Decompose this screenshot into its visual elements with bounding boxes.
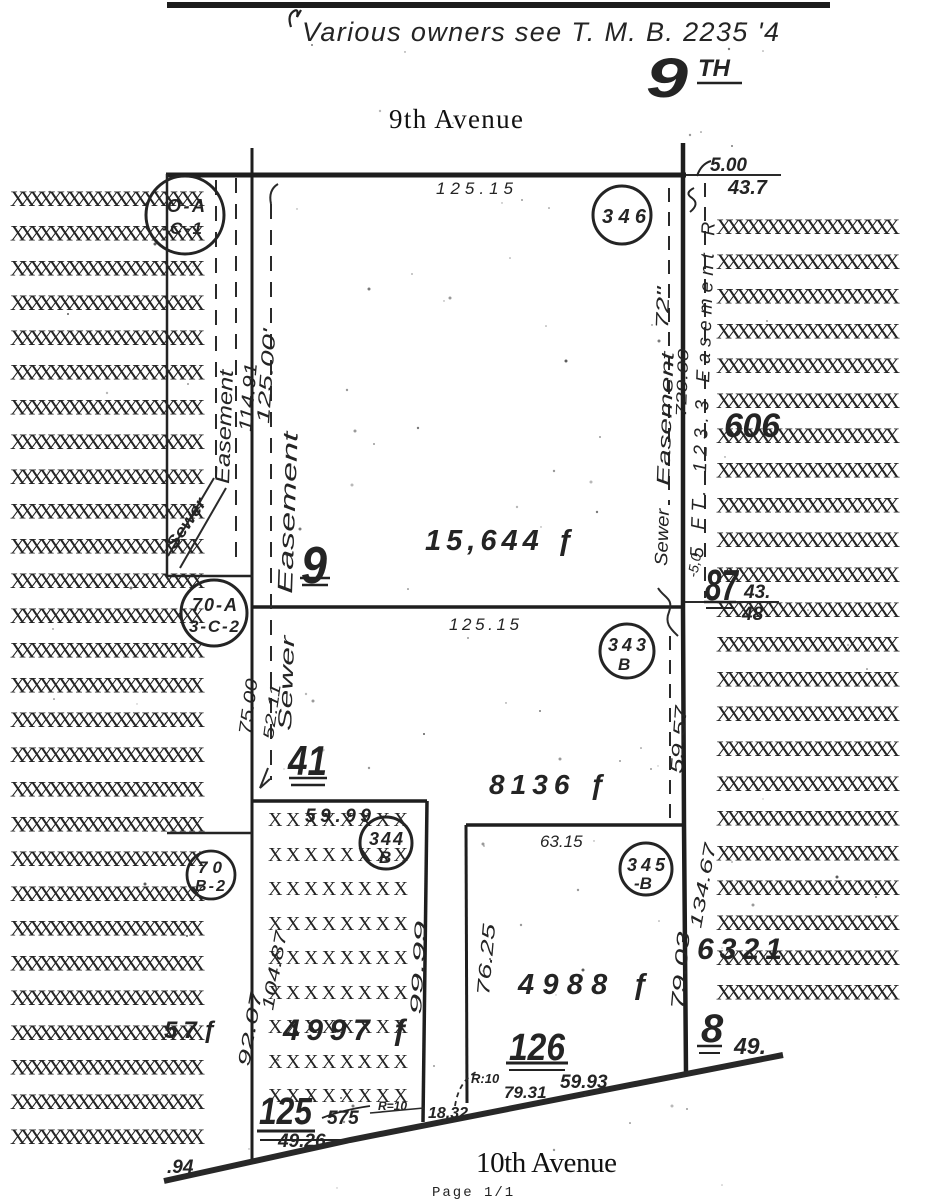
svg-text:XXXXXXXXXXXXXXXXXX: XXXXXXXXXXXXXXXXXX (716, 666, 900, 691)
svg-text:79.31: 79.31 (504, 1083, 547, 1102)
svg-text:Sewer: Sewer (651, 507, 673, 566)
svg-text:XXXXXXXXXXXXXXXXXX: XXXXXXXXXXXXXXXXXX (716, 806, 900, 831)
svg-text:X X X X X X X X: X X X X X X X X (268, 947, 409, 969)
svg-text:49.: 49. (733, 1033, 766, 1059)
svg-text:XXXXXXXXXXXXXXXXXXXX: XXXXXXXXXXXXXXXXXXXX (10, 742, 205, 767)
svg-text:XXXXXXXXXXXXXXXXXX: XXXXXXXXXXXXXXXXXX (716, 632, 900, 657)
svg-text:XXXXXXXXXXXXXXXXXXXX: XXXXXXXXXXXXXXXXXXXX (10, 256, 205, 281)
svg-text:X X X X X X X X: X X X X X X X X (268, 1051, 409, 1073)
svg-text:59.99: 59.99 (305, 806, 371, 827)
svg-text:XXXXXXXXXXXXXXXXXXXX: XXXXXXXXXXXXXXXXXXXX (10, 777, 205, 802)
svg-text:Various owners see T. M. B. 22: Various owners see T. M. B. 2235 '4 (302, 17, 779, 47)
svg-text:Page 1/1: Page 1/1 (432, 1185, 515, 1200)
svg-text:3-C-2: 3-C-2 (189, 617, 240, 636)
svg-text:XXXXXXXXXXXXXXXXXX: XXXXXXXXXXXXXXXXXX (716, 527, 900, 552)
svg-text:XXXXXXXXXXXXXXXXXX: XXXXXXXXXXXXXXXXXX (716, 318, 900, 343)
svg-text:XXXXXXXXXXXXXXXXXXXX: XXXXXXXXXXXXXXXXXXXX (10, 499, 205, 524)
svg-text:XXXXXXXXXXXXXXXXXX: XXXXXXXXXXXXXXXXXX (716, 214, 900, 239)
svg-text:XXXXXXXXXXXXXXXXXX: XXXXXXXXXXXXXXXXXX (716, 840, 900, 865)
svg-text:125: 125 (259, 1091, 313, 1133)
svg-text:XXXXXXXXXXXXXXXXXX: XXXXXXXXXXXXXXXXXX (716, 249, 900, 274)
svg-text:XXXXXXXXXXXXXXXXXX: XXXXXXXXXXXXXXXXXX (716, 284, 900, 309)
svg-text:XXXXXXXXXXXXXXXXXXXX: XXXXXXXXXXXXXXXXXXXX (10, 950, 205, 975)
svg-text:XXXXXXXXXXXXXXXXXX: XXXXXXXXXXXXXXXXXX (716, 980, 900, 1005)
svg-text:XXXXXXXXXXXXXXXXXX: XXXXXXXXXXXXXXXXXX (716, 910, 900, 935)
svg-text:B: B (618, 655, 630, 674)
svg-text:XXXXXXXXXXXXXXXXXXXX: XXXXXXXXXXXXXXXXXXXX (10, 429, 205, 454)
svg-text:XXXXXXXXXXXXXXXXXX: XXXXXXXXXXXXXXXXXX (716, 353, 900, 378)
svg-text:B-2: B-2 (195, 878, 225, 895)
svg-text:343: 343 (608, 635, 646, 655)
svg-text:8: 8 (701, 1007, 724, 1051)
svg-text:XXXXXXXXXXXXXXXXXX: XXXXXXXXXXXXXXXXXX (716, 875, 900, 900)
svg-text:XXXXXXXXXXXXXXXXXX: XXXXXXXXXXXXXXXXXX (716, 736, 900, 761)
svg-text:XXXXXXXXXXXXXXXXXX: XXXXXXXXXXXXXXXXXX (716, 458, 900, 483)
svg-text:57ƒ: 57ƒ (164, 1017, 216, 1044)
svg-text:XXXXXXXXXXXXXXXXXXXX: XXXXXXXXXXXXXXXXXXXX (10, 881, 205, 906)
svg-text:729.00: 729.00 (673, 348, 692, 418)
svg-text:R:10: R:10 (471, 1071, 500, 1086)
svg-text:X X X X X X X X: X X X X X X X X (268, 913, 409, 935)
svg-text:43.: 43. (743, 582, 770, 603)
svg-text:X X X X X X X X: X X X X X X X X (268, 982, 409, 1004)
svg-text:346: 346 (602, 206, 647, 228)
svg-text:XXXXXXXXXXXXXXXXXX: XXXXXXXXXXXXXXXXXX (716, 492, 900, 517)
svg-text:63.15: 63.15 (540, 832, 583, 851)
svg-text:XXXXXXXXXXXXXXXXXXXX: XXXXXXXXXXXXXXXXXXXX (10, 603, 205, 628)
svg-text:72": 72" (652, 284, 674, 329)
svg-text:XXXXXXXXXXXXXXXXXXXX: XXXXXXXXXXXXXXXXXXXX (10, 464, 205, 489)
svg-text:345: 345 (627, 855, 666, 875)
svg-text:Easement: Easement (212, 368, 238, 485)
svg-text:X X X X X X X X: X X X X X X X X (268, 878, 409, 900)
svg-text:XXXXXXXXXXXXXXXXXXXX: XXXXXXXXXXXXXXXXXXXX (10, 1055, 205, 1080)
svg-text:9th Avenue: 9th Avenue (389, 104, 523, 134)
svg-text:XXXXXXXXXXXXXXXXXXXX: XXXXXXXXXXXXXXXXXXXX (10, 568, 205, 593)
svg-text:XXXXXXXXXXXXXXXXXXXX: XXXXXXXXXXXXXXXXXXXX (10, 1124, 205, 1149)
svg-text:XXXXXXXXXXXXXXXXXXXX: XXXXXXXXXXXXXXXXXXXX (10, 360, 205, 385)
svg-text:9: 9 (301, 537, 327, 595)
svg-text:10th Avenue: 10th Avenue (476, 1147, 617, 1179)
svg-text:XXXXXXXXXXXXXXXXXXXX: XXXXXXXXXXXXXXXXXXXX (10, 672, 205, 697)
svg-text:XXXXXXXXXXXXXXXXXX: XXXXXXXXXXXXXXXXXX (716, 701, 900, 726)
svg-text:606: 606 (724, 407, 781, 445)
svg-text:48: 48 (741, 604, 764, 625)
svg-text:TH: TH (698, 55, 731, 82)
svg-text:XXXXXXXXXXXXXXXXXXXX: XXXXXXXXXXXXXXXXXXXX (10, 1089, 205, 1114)
svg-text:XXXXXXXXXXXXXXXXXXXX: XXXXXXXXXXXXXXXXXXXX (10, 325, 205, 350)
svg-text:X X X X X X X X: X X X X X X X X (268, 844, 409, 866)
svg-text:XXXXXXXXXXXXXXXXXXXX: XXXXXXXXXXXXXXXXXXXX (10, 394, 205, 419)
svg-text:XXXXXXXXXXXXXXXXXXXX: XXXXXXXXXXXXXXXXXXXX (10, 707, 205, 732)
svg-text:XXXXXXXXXXXXXXXXXXXX: XXXXXXXXXXXXXXXXXXXX (10, 985, 205, 1010)
svg-text:9: 9 (646, 46, 688, 109)
svg-text:XXXXXXXXXXXXXXXXXXXX: XXXXXXXXXXXXXXXXXXXX (10, 846, 205, 871)
svg-text:XXXXXXXXXXXXXXXXXXXX: XXXXXXXXXXXXXXXXXXXX (10, 916, 205, 941)
svg-text:43.7: 43.7 (727, 177, 768, 199)
svg-text:5.00: 5.00 (710, 155, 747, 176)
svg-text:XXXXXXXXXXXXXXXXXXXX: XXXXXXXXXXXXXXXXXXXX (10, 290, 205, 315)
svg-text:XXXXXXXXXXXXXXXXXX: XXXXXXXXXXXXXXXXXX (716, 771, 900, 796)
svg-text:O-A: O-A (167, 196, 205, 216)
svg-text:-B: -B (634, 874, 652, 893)
svg-text:XXXXXXXXXXXXXXXXXXXX: XXXXXXXXXXXXXXXXXXXX (10, 638, 205, 663)
